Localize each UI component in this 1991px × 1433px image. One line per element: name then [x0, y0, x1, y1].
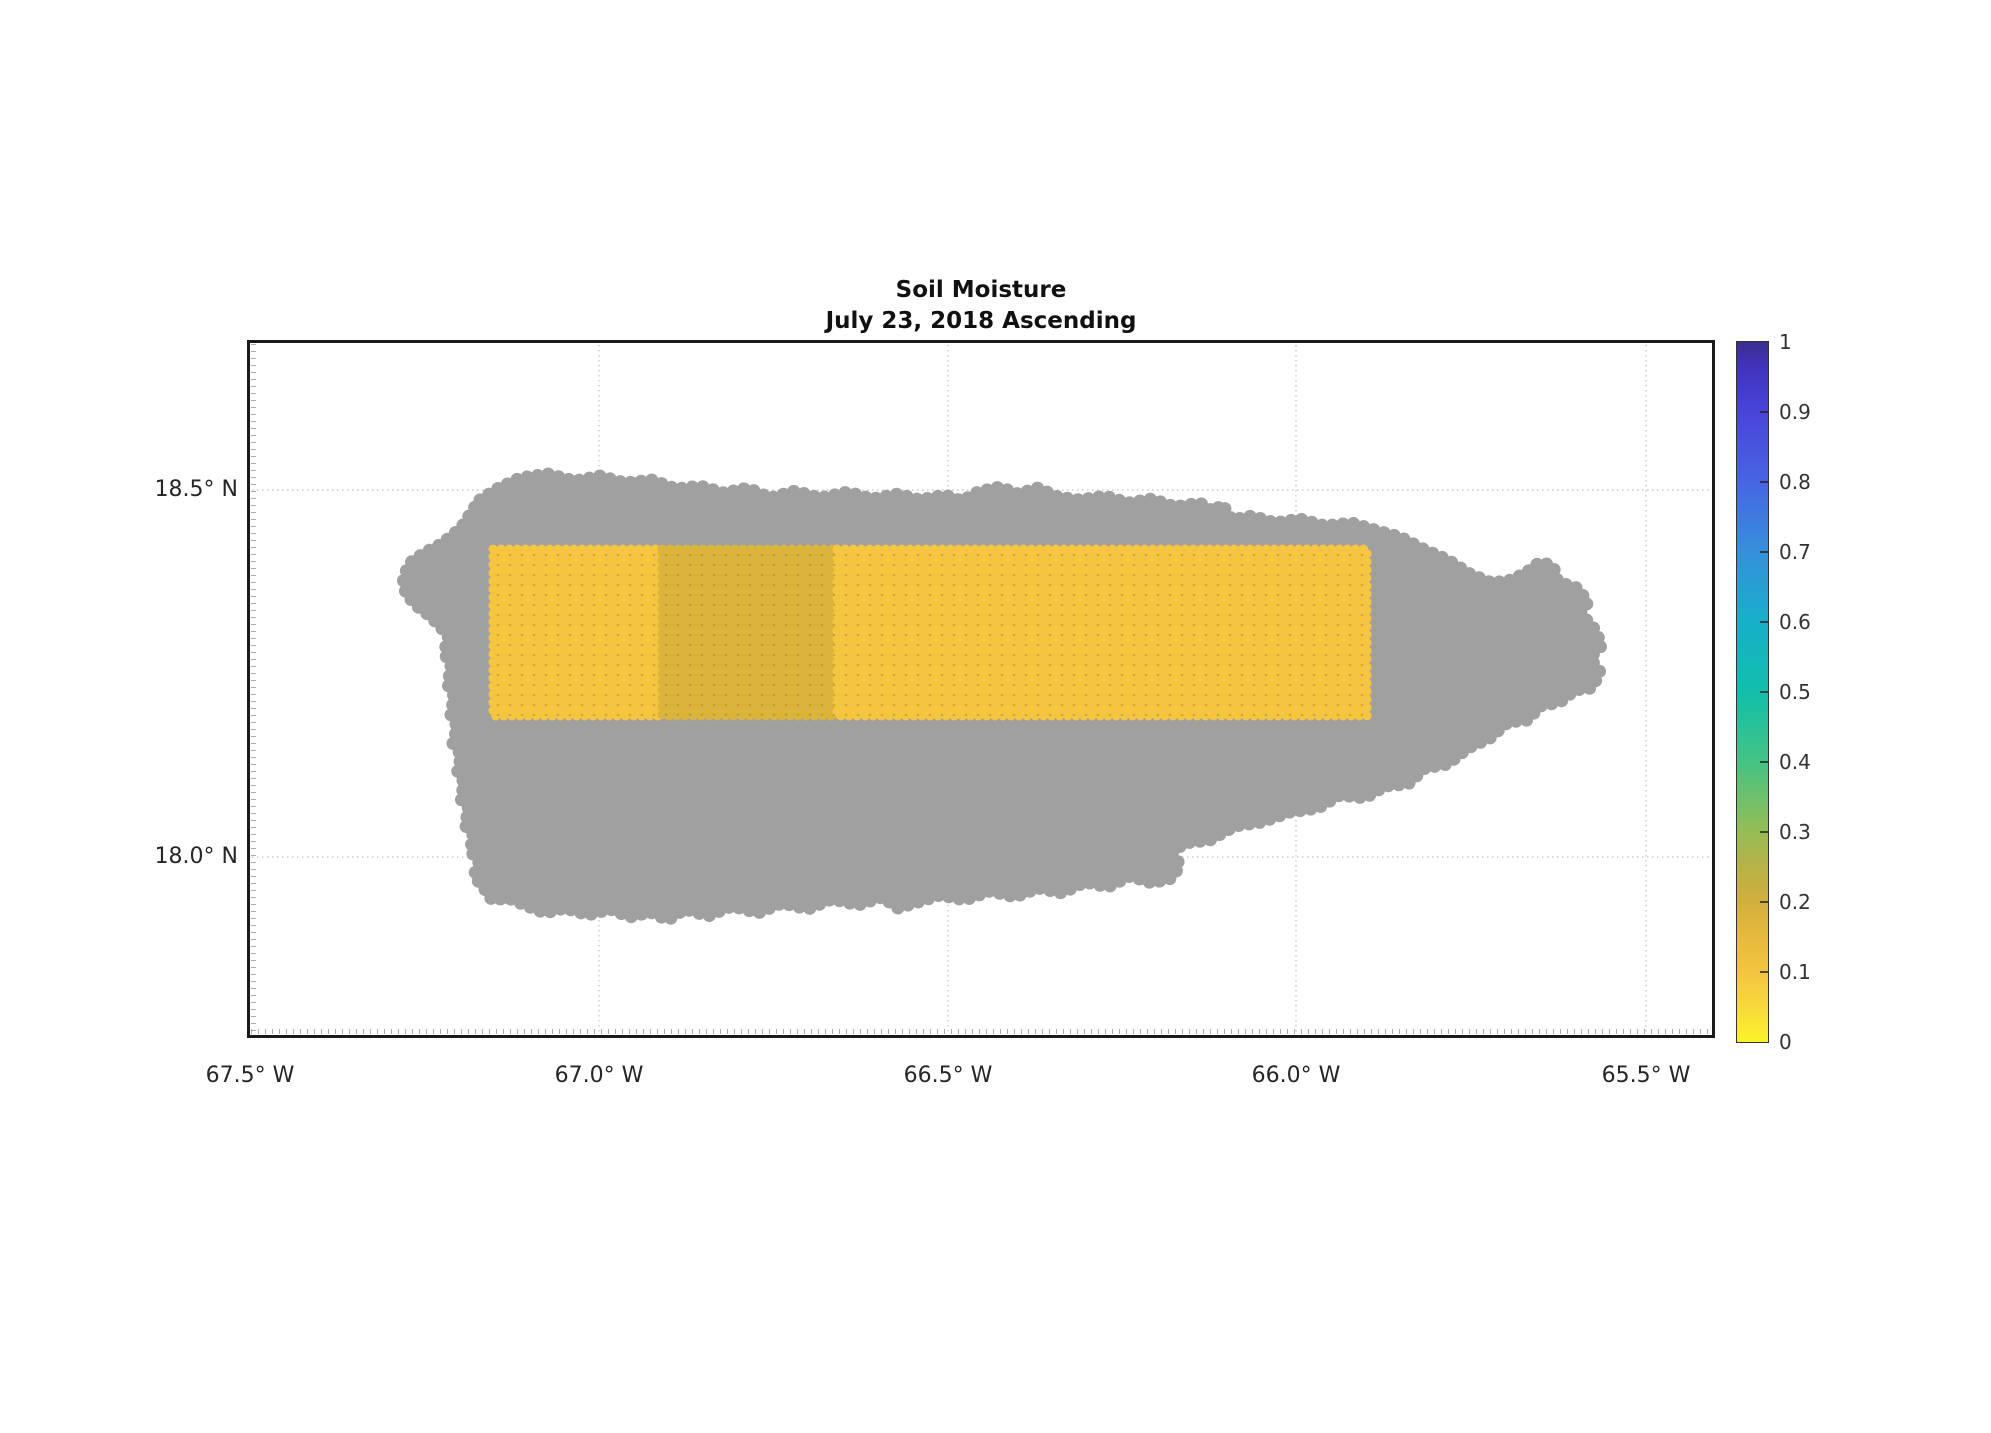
cbtick-0-9: 0.9 — [1779, 399, 1839, 425]
plot-frame — [247, 340, 1715, 1038]
cbtick-0-1: 0.1 — [1779, 959, 1839, 985]
xtick-67-5w: 67.5° W — [180, 1062, 320, 1090]
cbtick-0-3: 0.3 — [1779, 819, 1839, 845]
colorbar-gradient — [1737, 342, 1768, 1042]
cbtick-0-2: 0.2 — [1779, 889, 1839, 915]
xtick-66-5w: 66.5° W — [878, 1062, 1018, 1090]
minor-ticks-bottom-axis — [251, 1029, 1711, 1034]
ytick-18-5n: 18.5° N — [100, 476, 238, 504]
soil-moisture-figure: Soil Moisture July 23, 2018 Ascending — [0, 0, 1991, 1433]
minor-ticks-left-axis — [251, 344, 256, 1034]
cbtick-0-6: 0.6 — [1779, 609, 1839, 635]
chart-title-line2: July 23, 2018 Ascending — [247, 306, 1715, 337]
colorbar — [1736, 341, 1769, 1043]
cbtick-0: 0 — [1779, 1029, 1839, 1055]
cbtick-0-5: 0.5 — [1779, 679, 1839, 705]
cbtick-0-4: 0.4 — [1779, 749, 1839, 775]
xtick-65-5w: 65.5° W — [1576, 1062, 1716, 1090]
ytick-18n: 18.0° N — [100, 843, 238, 871]
chart-title: Soil Moisture July 23, 2018 Ascending — [247, 275, 1715, 337]
cbtick-1: 1 — [1779, 329, 1839, 355]
cbtick-0-8: 0.8 — [1779, 469, 1839, 495]
xtick-66w: 66.0° W — [1226, 1062, 1366, 1090]
cbtick-0-7: 0.7 — [1779, 539, 1839, 565]
chart-title-line1: Soil Moisture — [247, 275, 1715, 306]
xtick-67w: 67.0° W — [529, 1062, 669, 1090]
